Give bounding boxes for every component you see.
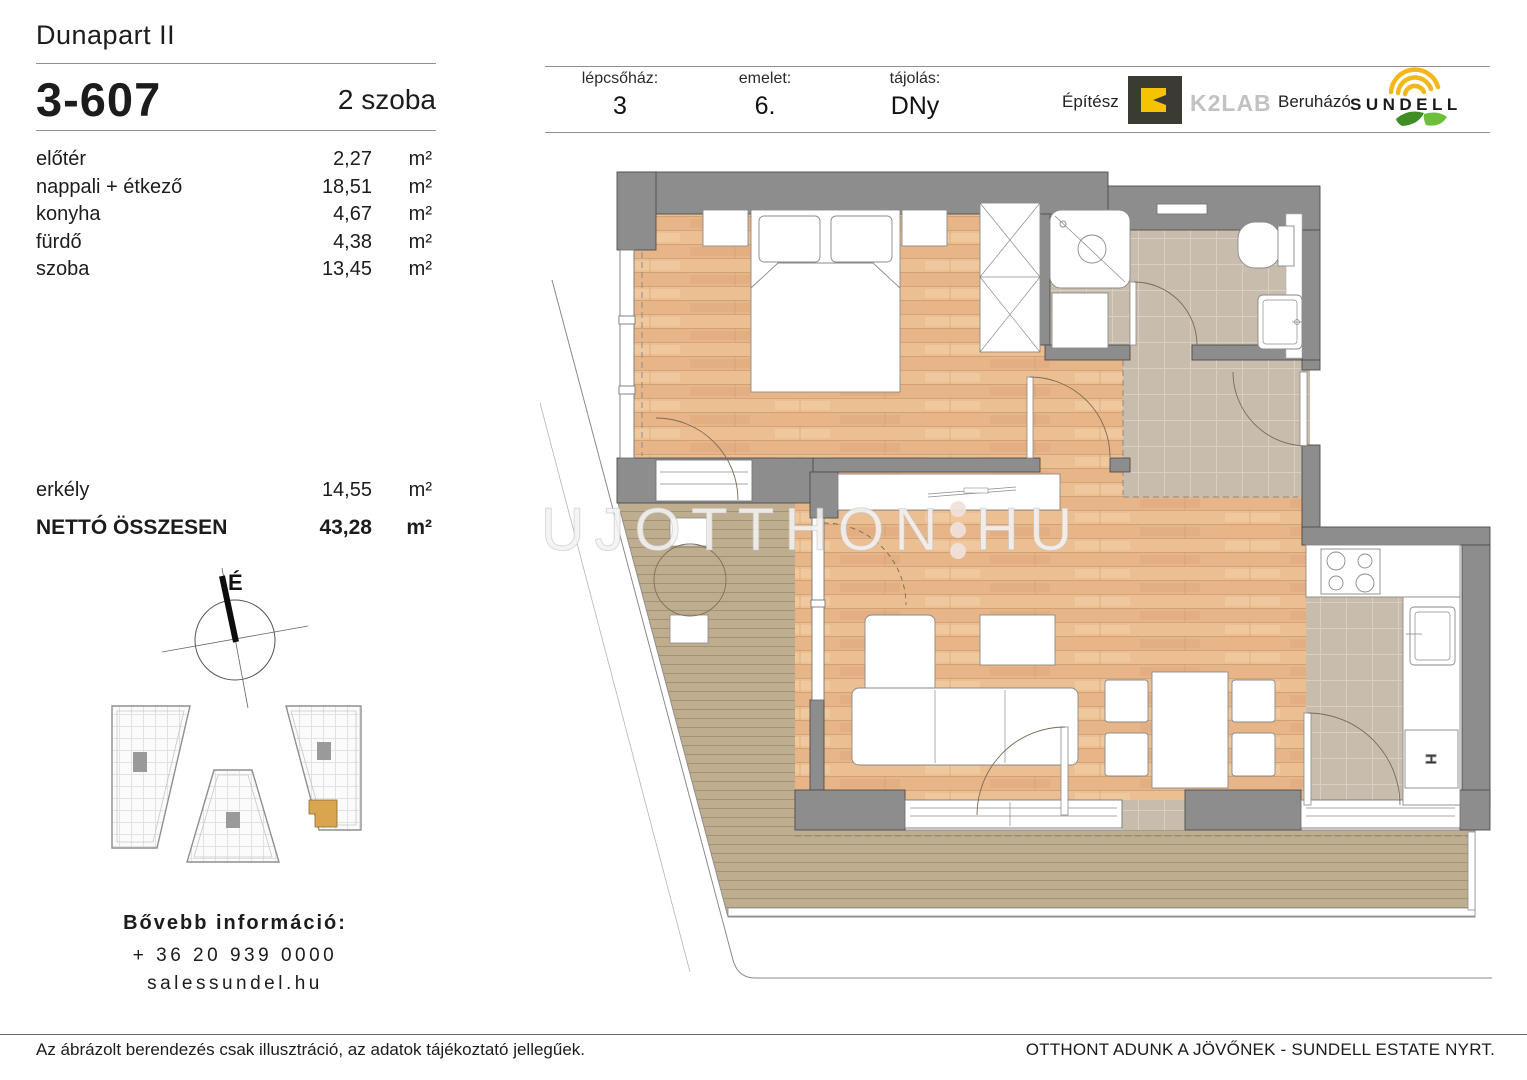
unit-highlight <box>309 800 337 827</box>
room-unit: m² <box>372 174 432 202</box>
room-unit: m² <box>372 477 432 505</box>
kitchen-floor <box>1306 597 1405 805</box>
hallway-floor <box>1123 358 1310 497</box>
coffee-table <box>980 615 1055 665</box>
unit-type: 2 szoba <box>236 84 436 116</box>
nightstand <box>902 210 947 246</box>
sofa <box>852 688 1078 765</box>
terrace-chair <box>670 615 708 643</box>
room-unit: m² <box>372 256 432 284</box>
room-name: nappali + étkező <box>36 174 282 202</box>
building-outline-a <box>112 706 190 848</box>
area-row: szoba 13,45 m² <box>36 256 432 284</box>
floorplan-datasheet: Dunapart II 3-607 2 szoba lépcsőház: 3 e… <box>0 0 1527 1080</box>
total-value: 43,28 <box>282 514 372 542</box>
field-orientation: tájolás: DNy <box>835 70 995 121</box>
terrace-railing <box>728 908 1475 916</box>
north-label: É <box>228 570 243 595</box>
footer-divider <box>0 1034 1527 1035</box>
terrace-chair <box>670 518 708 546</box>
field-value: 3 <box>545 92 695 121</box>
developer-name: SUNDELL <box>1350 95 1462 114</box>
room-value: 18,51 <box>282 174 372 202</box>
field-value: DNy <box>835 92 995 121</box>
room-name: szoba <box>36 256 282 284</box>
area-row: konyha 4,67 m² <box>36 201 432 229</box>
kitchen-sink <box>1410 607 1455 665</box>
sundell-logo: SUNDELL <box>1348 62 1468 141</box>
terrace-glass-door <box>905 800 1122 828</box>
fridge-symbol: H <box>1422 754 1439 765</box>
toilet-tank <box>1278 226 1294 266</box>
contact-heading: Bővebb információ: <box>88 912 382 935</box>
room-unit: m² <box>372 201 432 229</box>
room-area-list: előtér 2,27 m² nappali + étkező 18,51 m²… <box>36 146 432 284</box>
living-west-glass <box>812 518 824 700</box>
building-outline-c <box>286 706 361 830</box>
pillow <box>759 216 820 262</box>
total-label: NETTÓ ÖSSZESEN <box>36 514 282 542</box>
field-floor: emelet: 6. <box>690 70 840 121</box>
room-value: 14,55 <box>282 477 372 505</box>
room-unit: m² <box>372 229 432 257</box>
room-value: 4,38 <box>282 229 372 257</box>
divider <box>36 130 436 131</box>
field-label: lépcsőház: <box>545 70 695 88</box>
area-row: előtér 2,27 m² <box>36 146 432 174</box>
architect-label: Építész <box>1062 92 1119 112</box>
architect-name: K2LAB <box>1190 90 1272 117</box>
contact-website: salessundel.hu <box>88 970 382 998</box>
bedroom-west-window <box>620 250 634 458</box>
balcony-row: erkély 14,55 m² <box>36 477 432 505</box>
floor-plan: H <box>540 160 1500 1025</box>
site-plan <box>95 690 380 875</box>
room-value: 4,67 <box>282 201 372 229</box>
project-title: Dunapart II <box>36 20 175 51</box>
total-unit: m² <box>372 514 432 542</box>
footer-slogan: OTTHONT ADUNK A JÖVŐNEK - SUNDELL ESTATE… <box>1026 1040 1495 1060</box>
field-label: emelet: <box>690 70 840 88</box>
building-outline-b <box>187 770 279 862</box>
pillow <box>831 216 892 262</box>
bathroom-window <box>1157 204 1207 214</box>
room-value: 13,45 <box>282 256 372 284</box>
total-row: NETTÓ ÖSSZESEN 43,28 m² <box>36 514 432 542</box>
dining-chair <box>1105 680 1148 722</box>
room-name: előtér <box>36 146 282 174</box>
dining-chair <box>1105 733 1148 776</box>
contact-block: Bővebb információ: + 36 20 939 0000 sale… <box>88 912 382 998</box>
field-value: 6. <box>690 92 840 121</box>
stove <box>1321 549 1380 594</box>
room-value: 2,27 <box>282 146 372 174</box>
room-unit: m² <box>372 146 432 174</box>
unit-id: 3-607 <box>36 72 161 127</box>
room-name: fürdő <box>36 229 282 257</box>
dining-chair <box>1232 680 1275 722</box>
dining-chair <box>1232 733 1275 776</box>
field-staircase: lépcsőház: 3 <box>545 70 695 121</box>
area-row: nappali + étkező 18,51 m² <box>36 174 432 202</box>
dining-table <box>1152 672 1228 788</box>
contact-phone: + 36 20 939 0000 <box>88 942 382 970</box>
divider <box>36 63 436 64</box>
room-name: konyha <box>36 201 282 229</box>
nightstand <box>703 210 748 246</box>
wardrobe <box>980 203 1040 352</box>
room-name: erkély <box>36 477 282 505</box>
field-label: tájolás: <box>835 70 995 88</box>
developer-label: Beruházó <box>1278 92 1351 112</box>
k2lab-logo-icon <box>1128 76 1182 124</box>
bath-cabinet <box>1052 293 1108 348</box>
footer-disclaimer: Az ábrázolt berendezés csak illusztráció… <box>36 1040 585 1060</box>
toilet <box>1238 222 1280 268</box>
area-row: fürdő 4,38 m² <box>36 229 432 257</box>
